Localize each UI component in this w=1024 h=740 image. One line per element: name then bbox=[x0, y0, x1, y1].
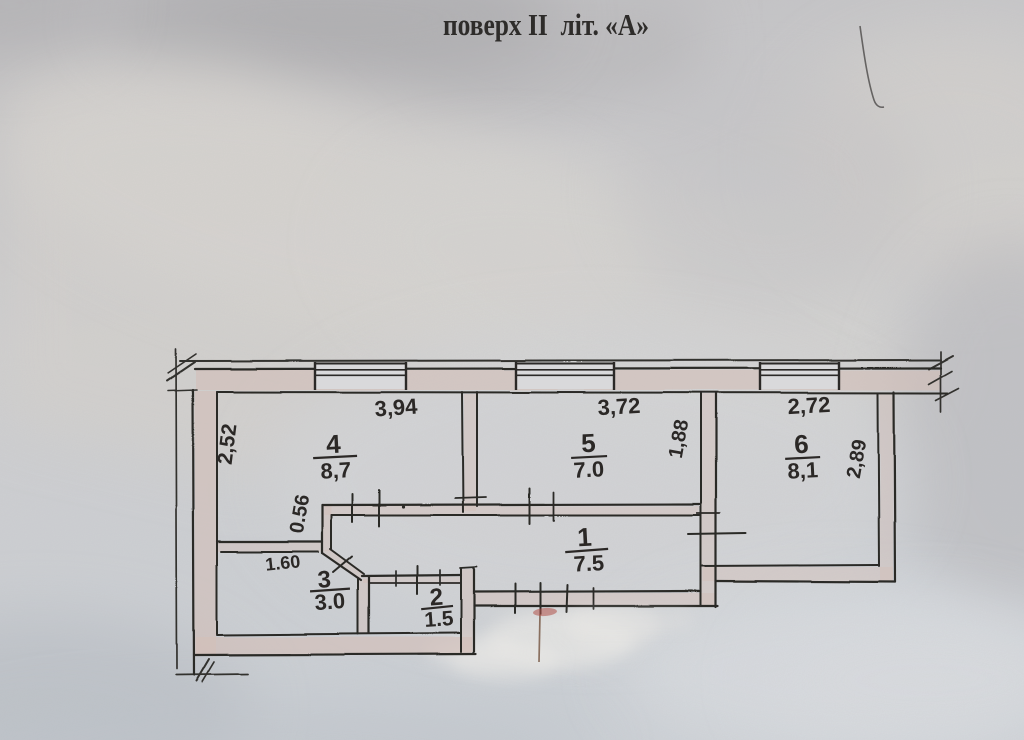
svg-text:5: 5 bbox=[580, 428, 596, 459]
svg-text:4: 4 bbox=[325, 429, 342, 460]
svg-text:1.5: 1.5 bbox=[424, 607, 455, 632]
svg-text:7.5: 7.5 bbox=[573, 550, 605, 577]
svg-text:3.0: 3.0 bbox=[314, 588, 346, 615]
svg-text:поверх II літ. «А»: поверх II літ. «А» bbox=[443, 7, 649, 42]
svg-text:8,1: 8,1 bbox=[787, 457, 819, 484]
svg-text:1.60: 1.60 bbox=[264, 551, 301, 575]
svg-text:3,72: 3,72 bbox=[597, 393, 641, 420]
svg-text:3,94: 3,94 bbox=[374, 393, 419, 421]
svg-text:2,72: 2,72 bbox=[787, 392, 831, 419]
svg-text:6: 6 bbox=[793, 429, 809, 460]
svg-text:8,7: 8,7 bbox=[320, 457, 352, 484]
svg-text:7.0: 7.0 bbox=[573, 456, 605, 483]
svg-text:1: 1 bbox=[576, 522, 592, 553]
